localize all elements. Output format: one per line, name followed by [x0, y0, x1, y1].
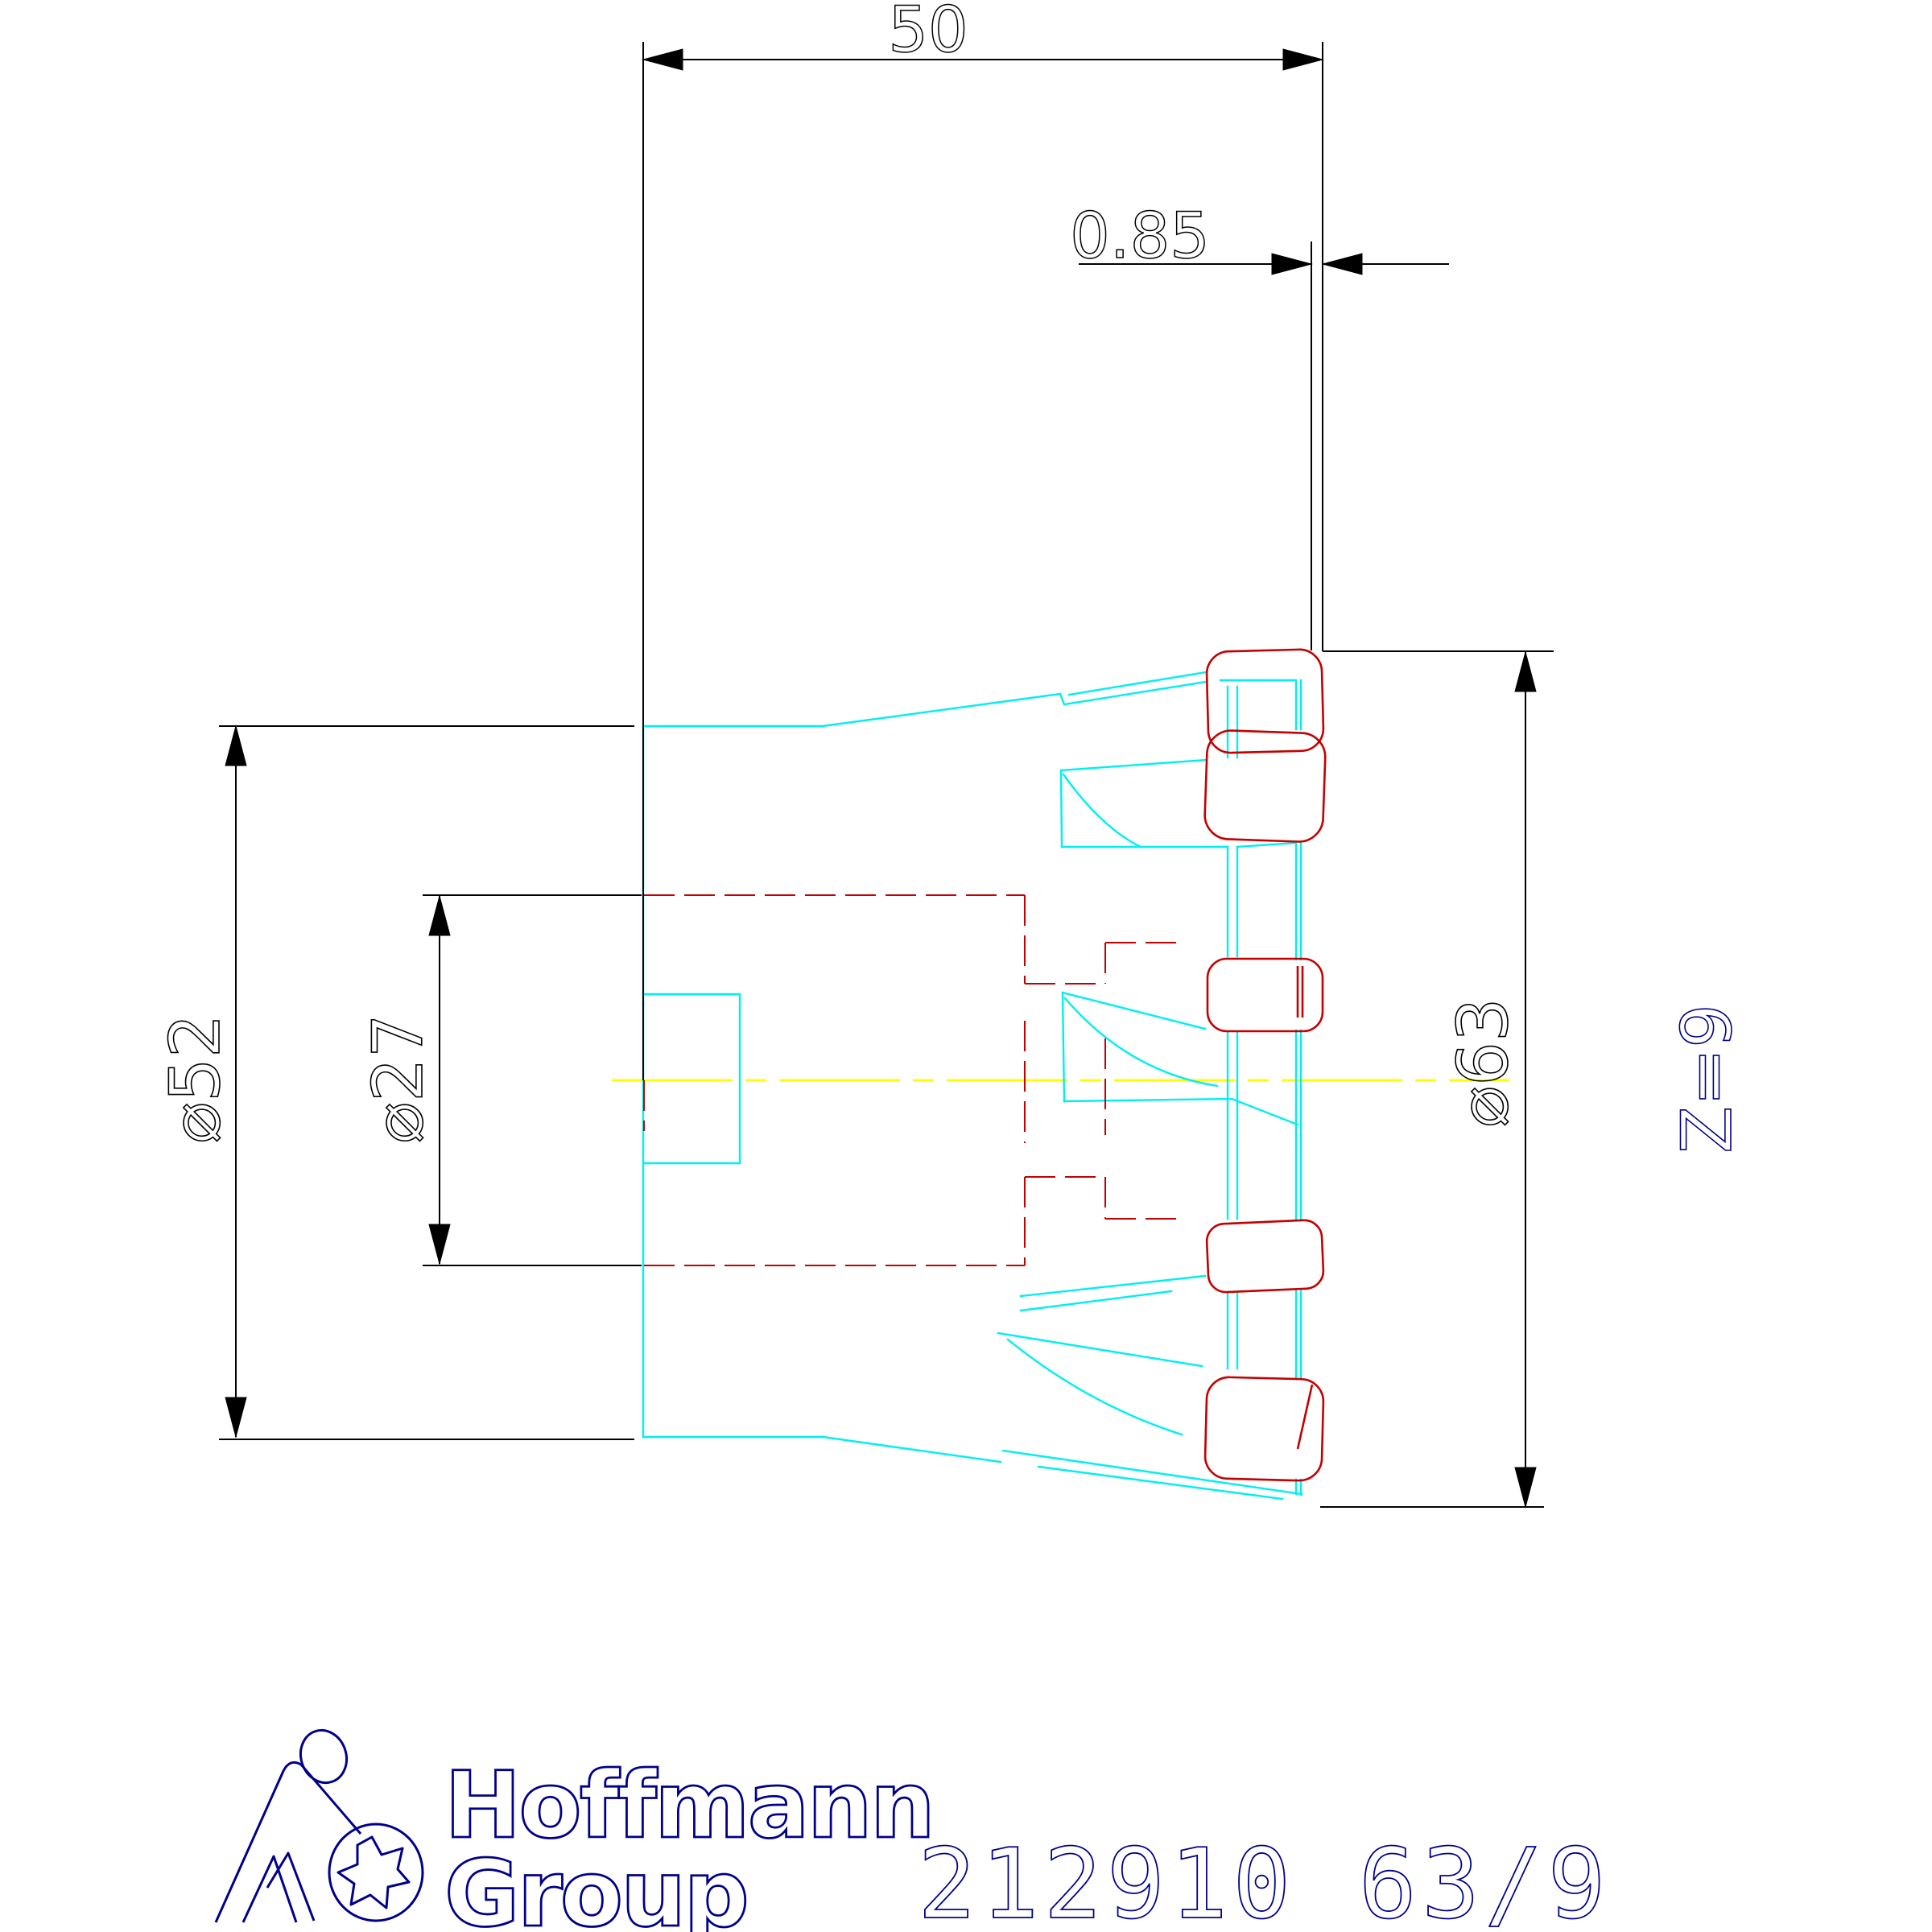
- cad-drawing-page: 50 0.85 ⌀52 ⌀27 ⌀63 Z=9 Hoffmann Group 2…: [0, 0, 1932, 1932]
- insert-pocket-lower: [1021, 1276, 1205, 1311]
- insert-4-lower: [1206, 1220, 1324, 1293]
- dim-label-shank-diameter: ⌀52: [155, 1013, 236, 1143]
- dim-label-overall-length: 50: [888, 0, 968, 67]
- insert-5-edge-detail: [1298, 1385, 1312, 1449]
- body-bottom-margin-a: [1003, 1451, 1302, 1494]
- teeth-count-label: Z=9: [1667, 1004, 1748, 1154]
- body-top-margin-a: [1064, 682, 1206, 704]
- body-front-face-inner: [1228, 687, 1237, 1368]
- dimensions-group: 50 0.85 ⌀52 ⌀27 ⌀63: [155, 0, 1554, 1507]
- insert-2-upper: [1204, 729, 1327, 842]
- body-front-face-outer: [1296, 680, 1301, 1495]
- body-bottom-margin-b: [1038, 1467, 1282, 1499]
- insert-3-middle: [1207, 959, 1323, 1031]
- insert-pocket-upper: [1061, 760, 1296, 847]
- brand-name-line2: Group: [444, 1840, 747, 1932]
- inserts-group: [1204, 649, 1327, 1481]
- dim-label-bore-diameter: ⌀27: [358, 1013, 439, 1143]
- insert-pocket-middle: [1063, 993, 1298, 1125]
- body-top-cone-step: [1060, 694, 1064, 704]
- part-number-label: 212910 63/9: [918, 1829, 1611, 1932]
- insert-5-bottom: [1204, 1377, 1323, 1481]
- insert-1-top: [1206, 649, 1323, 753]
- body-top-margin-b: [1069, 672, 1206, 695]
- cutter-body-group: [643, 672, 1302, 1499]
- logo-star-icon: [338, 1837, 409, 1908]
- technical-drawing-canvas: 50 0.85 ⌀52 ⌀27 ⌀63 Z=9 Hoffmann Group 2…: [0, 0, 1932, 1932]
- body-top-cone: [823, 694, 1060, 726]
- body-keyway-slot: [643, 994, 740, 1163]
- hoffmann-logo-icon: [216, 1724, 423, 1922]
- dim-label-cutting-diameter: ⌀63: [1443, 997, 1524, 1127]
- body-bottom-cone: [823, 1437, 1001, 1462]
- dim-label-protrusion: 0.85: [1070, 200, 1210, 273]
- dimension-arrowheads: [225, 49, 1536, 1507]
- insert-pocket-bottom: [998, 1333, 1202, 1435]
